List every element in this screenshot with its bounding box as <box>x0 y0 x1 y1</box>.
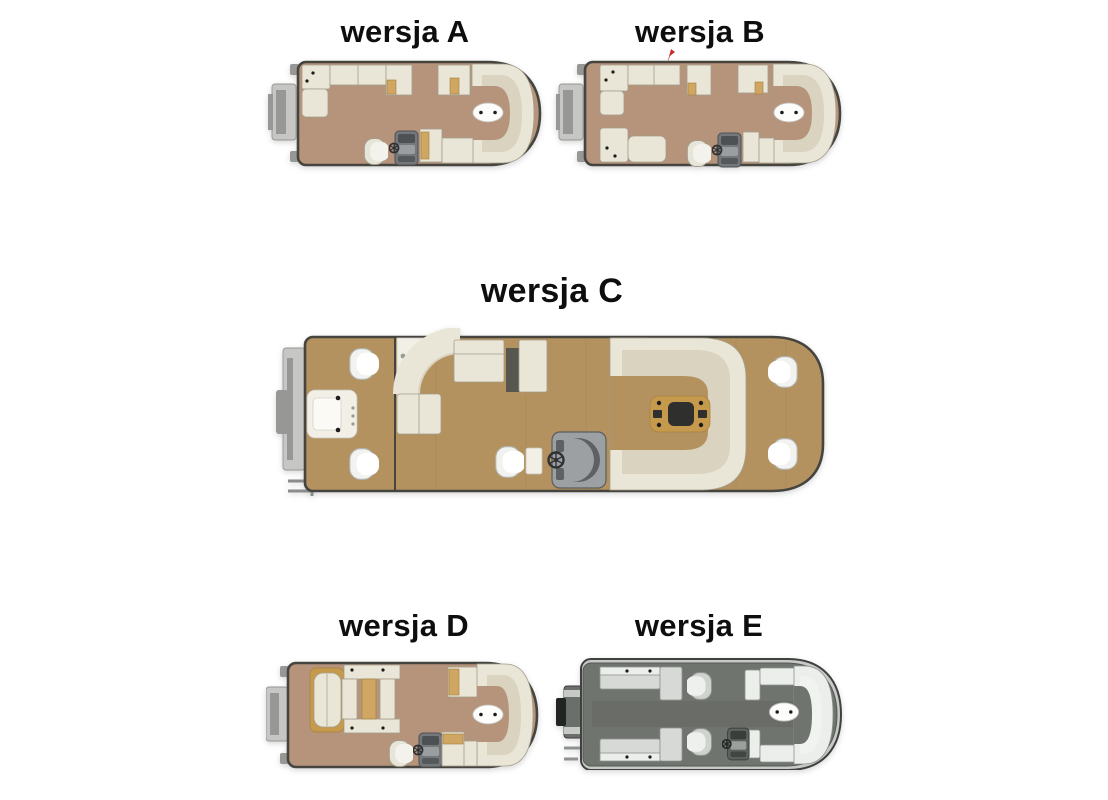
boat-plan-version-b <box>556 56 844 170</box>
title-version-e: wersja E <box>556 610 842 641</box>
outboard-motor <box>556 64 586 162</box>
outboard-motor <box>268 64 299 162</box>
oval-table <box>473 705 503 724</box>
oval-table <box>473 103 503 122</box>
aft-wood-table <box>650 396 710 432</box>
boat-plan-version-c <box>276 328 832 498</box>
oval-table <box>774 103 804 122</box>
chair-side-pad <box>526 448 542 474</box>
title-version-b: wersja B <box>556 16 844 47</box>
stern-wraparound-seat <box>794 666 833 764</box>
helm-console <box>549 432 607 488</box>
outboard-motor <box>556 686 582 759</box>
helm-side-bench <box>442 732 464 766</box>
boat-plan-version-e <box>556 656 842 770</box>
storage-recess <box>506 348 519 392</box>
bow-prep-table <box>307 390 357 438</box>
boat-version-sheet: wersja A <box>0 0 1108 800</box>
oval-table <box>769 703 798 721</box>
swim-platform-motor <box>276 348 305 470</box>
helm-side-bench <box>743 132 759 162</box>
title-version-a: wersja A <box>266 16 544 47</box>
outboard-motor <box>266 666 289 764</box>
boat-plan-version-d <box>266 660 542 772</box>
center-aisle <box>592 701 797 727</box>
title-version-c: wersja C <box>276 274 828 308</box>
title-version-d: wersja D <box>266 610 542 641</box>
boat-plan-version-a <box>266 56 544 170</box>
bow-facing-lounge-group <box>310 665 400 733</box>
